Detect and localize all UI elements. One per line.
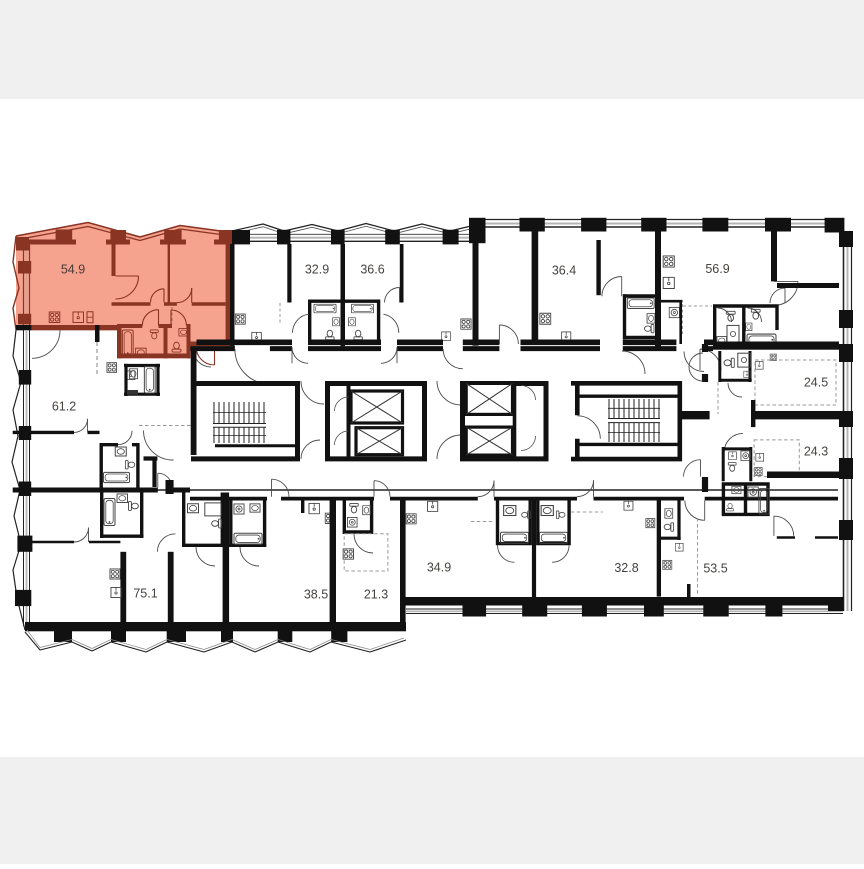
svg-text:61.2: 61.2 (52, 399, 76, 413)
svg-text:53.5: 53.5 (703, 561, 727, 575)
svg-text:24.5: 24.5 (804, 375, 828, 389)
svg-text:36.4: 36.4 (552, 263, 576, 277)
svg-text:75.1: 75.1 (133, 586, 157, 600)
svg-text:34.9: 34.9 (427, 560, 451, 574)
svg-text:54.9: 54.9 (61, 262, 85, 276)
svg-text:24.3: 24.3 (804, 444, 828, 458)
svg-text:56.9: 56.9 (705, 262, 729, 276)
svg-text:21.3: 21.3 (364, 587, 388, 601)
svg-text:32.9: 32.9 (305, 262, 329, 276)
svg-text:36.6: 36.6 (360, 262, 384, 276)
svg-text:32.8: 32.8 (614, 561, 638, 575)
svg-text:38.5: 38.5 (304, 587, 328, 601)
